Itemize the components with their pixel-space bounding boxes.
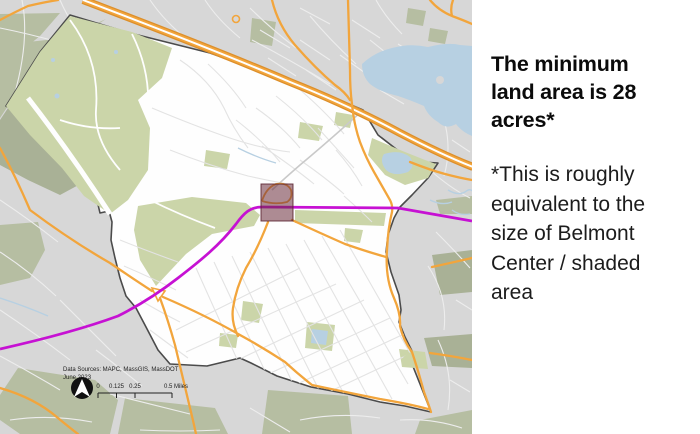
belmont-map: Data Sources: MAPC, MassGIS, MassDOT Jun… bbox=[0, 0, 472, 434]
footnote-line-2: equivalent to the bbox=[491, 190, 688, 220]
headline-line-3: acres* bbox=[491, 106, 688, 134]
headline: The minimum land area is 28 acres* bbox=[491, 50, 688, 134]
scale-label-0125: 0.125 bbox=[109, 384, 125, 390]
scale-label-05-miles: 0.5 Miles bbox=[164, 384, 188, 390]
footnote-line-5: area bbox=[491, 278, 688, 308]
footnote-line-4: Center / shaded bbox=[491, 249, 688, 279]
footnote-line-1: *This is roughly bbox=[491, 160, 688, 190]
slide: Data Sources: MAPC, MassGIS, MassDOT Jun… bbox=[0, 0, 700, 434]
info-panel: The minimum land area is 28 acres* *This… bbox=[472, 0, 700, 434]
headline-line-2: land area is 28 bbox=[491, 78, 688, 106]
map-canvas: Data Sources: MAPC, MassGIS, MassDOT Jun… bbox=[0, 0, 472, 434]
footnote: *This is roughly equivalent to the size … bbox=[491, 160, 688, 308]
north-arrow-icon bbox=[71, 377, 93, 399]
credits-text: Data Sources: MAPC, MassGIS, MassDOT bbox=[63, 367, 179, 373]
headline-line-1: The minimum bbox=[491, 50, 688, 78]
shaded-area-overlay bbox=[261, 184, 293, 221]
route-2-rotary bbox=[233, 16, 240, 23]
footnote-line-3: size of Belmont bbox=[491, 219, 688, 249]
scale-label-025: 0.25 bbox=[129, 384, 141, 390]
